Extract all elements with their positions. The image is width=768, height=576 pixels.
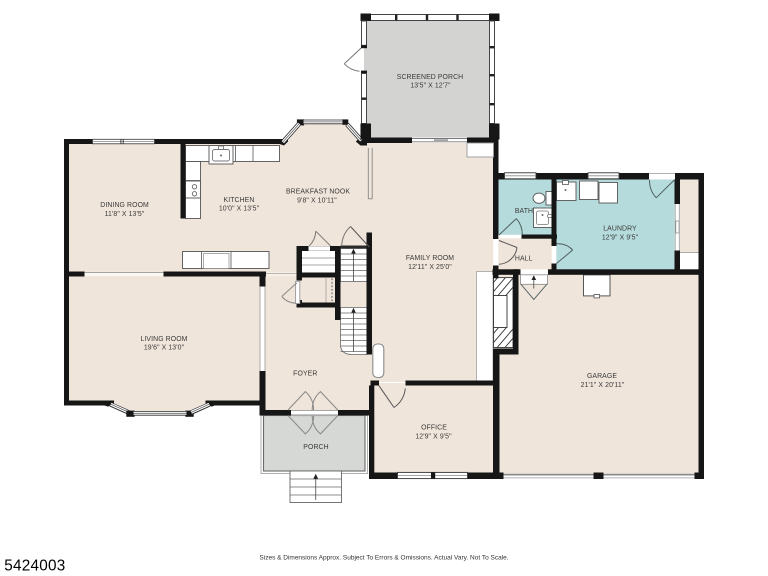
svg-text:10'0" X 13'5": 10'0" X 13'5" xyxy=(219,206,260,213)
svg-text:PORCH: PORCH xyxy=(303,444,328,451)
svg-text:DINING ROOM: DINING ROOM xyxy=(100,202,149,209)
svg-text:12'11" X 25'0": 12'11" X 25'0" xyxy=(408,264,452,271)
svg-text:9'8" X 10'11": 9'8" X 10'11" xyxy=(297,197,337,204)
svg-text:HALL: HALL xyxy=(515,255,533,262)
svg-text:FOYER: FOYER xyxy=(293,371,317,378)
svg-text:12'9" X 9'5": 12'9" X 9'5" xyxy=(415,433,452,440)
svg-text:SCREENED PORCH: SCREENED PORCH xyxy=(397,74,464,81)
svg-text:BREAKFAST NOOK: BREAKFAST NOOK xyxy=(286,189,350,196)
svg-text:Sizes & Dimensions Approx. Sub: Sizes & Dimensions Approx. Subject To Er… xyxy=(259,554,508,561)
svg-text:19'6" X 13'0": 19'6" X 13'0" xyxy=(144,344,185,351)
svg-text:LIVING ROOM: LIVING ROOM xyxy=(140,336,187,343)
svg-text:12'9" X 9'5": 12'9" X 9'5" xyxy=(602,235,639,242)
svg-text:BATH: BATH xyxy=(515,208,533,215)
svg-text:OFFICE: OFFICE xyxy=(421,425,447,432)
svg-text:FAMILY ROOM: FAMILY ROOM xyxy=(406,255,454,262)
svg-text:KITCHEN: KITCHEN xyxy=(224,197,255,204)
svg-text:LAUNDRY: LAUNDRY xyxy=(603,225,637,232)
svg-text:GARAGE: GARAGE xyxy=(587,373,617,380)
svg-text:21'1" X 20'11": 21'1" X 20'11" xyxy=(581,382,625,389)
svg-text:13'5" X 12'7": 13'5" X 12'7" xyxy=(410,82,451,89)
svg-text:5424003: 5424003 xyxy=(4,557,65,574)
svg-text:11'8" X 13'5": 11'8" X 13'5" xyxy=(105,211,145,218)
